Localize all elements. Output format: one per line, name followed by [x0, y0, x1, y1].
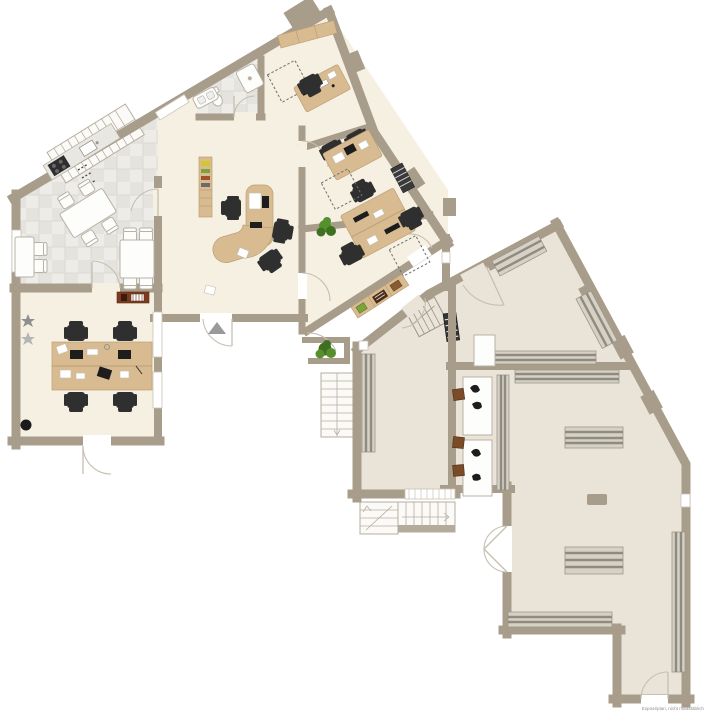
- floor-plan-canvas: Exposéplan, nicht maßstäblich: [0, 0, 707, 720]
- rack-hall-left: [497, 375, 509, 490]
- desktop-pc: [249, 193, 261, 209]
- exterior-stairs-south: [360, 502, 455, 534]
- window-hall-south: [405, 489, 455, 499]
- window-hall-east: [681, 494, 690, 507]
- monitor-icon: [262, 196, 269, 208]
- floor-plan: Exposéplan, nicht maßstäblich: [0, 0, 707, 720]
- rack-free-1: [565, 427, 623, 448]
- workbench-1: [463, 377, 492, 435]
- plan-disclaimer: Exposéplan, nicht maßstäblich: [642, 706, 705, 711]
- stair-landing: [398, 525, 455, 532]
- rack-west-room: [362, 354, 375, 452]
- kitchen-table-east: [120, 228, 154, 289]
- stool-3: [453, 464, 465, 476]
- workbench-0: [474, 335, 495, 366]
- rack-mid-2: [515, 370, 619, 383]
- bookshelf: [199, 157, 212, 217]
- pier-stub: [587, 494, 607, 505]
- workbench-2: [463, 440, 492, 496]
- team-table: [52, 342, 152, 390]
- bin-dot: [21, 420, 32, 431]
- rack-south: [508, 612, 612, 627]
- rack-free-2: [565, 547, 623, 574]
- corner-niche: [359, 341, 368, 350]
- window-office-east: [442, 252, 450, 263]
- window-teamroom-1: [153, 312, 162, 357]
- exterior-stairs-west: [321, 373, 354, 437]
- window-teamroom-2: [153, 372, 162, 408]
- rack-east-wall: [672, 532, 685, 672]
- stool-2: [452, 437, 464, 449]
- sideboard-dark: [117, 292, 149, 303]
- rack-mid-1: [490, 351, 596, 364]
- stool-1: [452, 388, 464, 400]
